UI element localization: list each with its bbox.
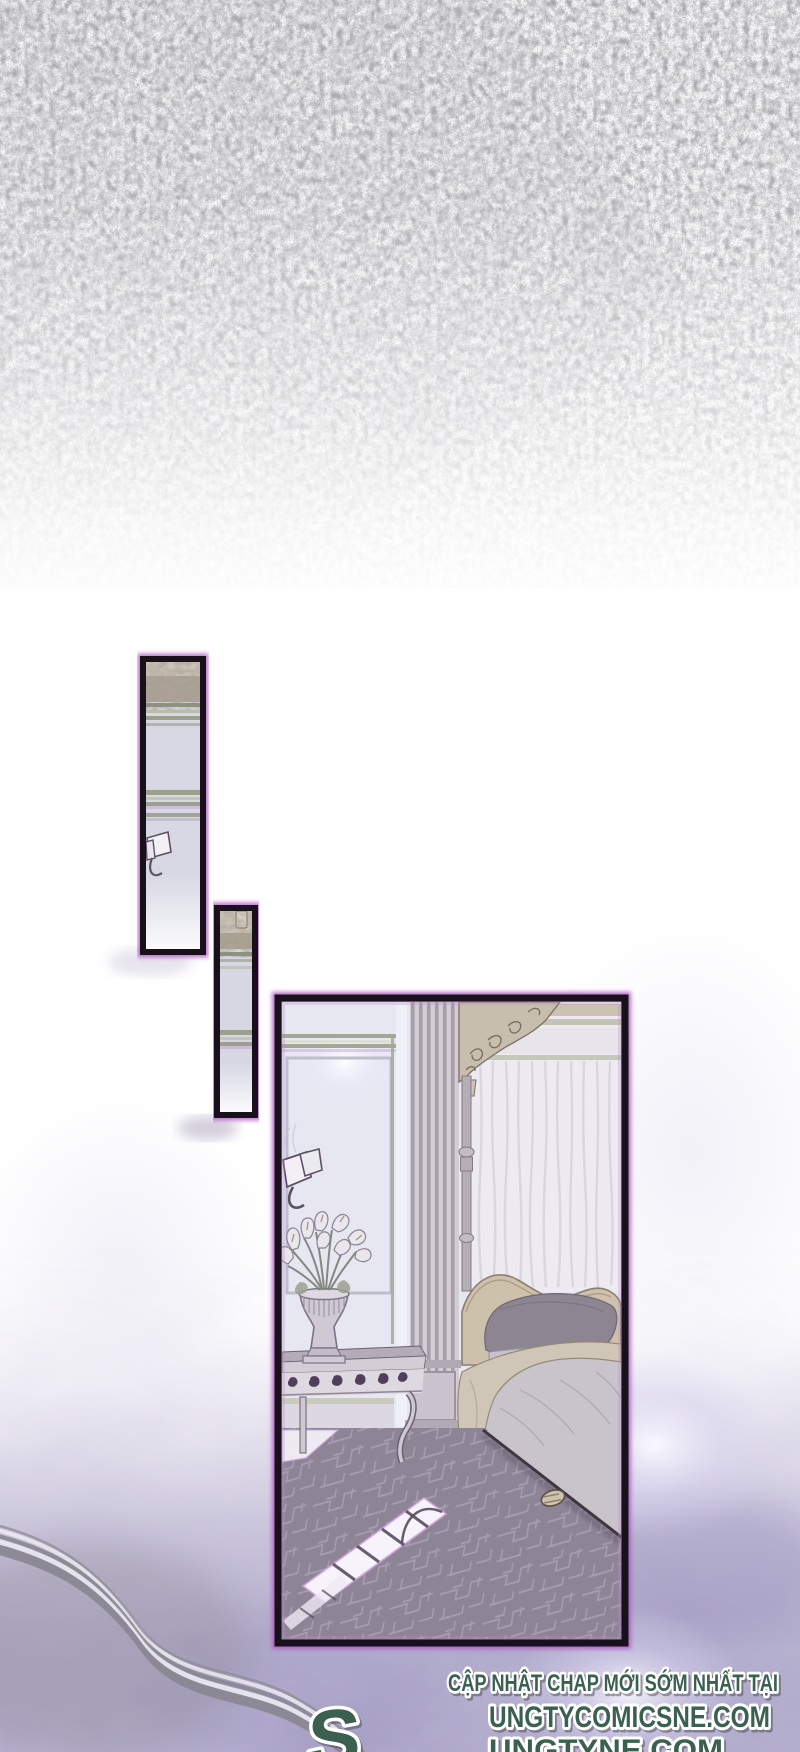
page-artwork: CẬP NHẬT CHAP MỚI SỚM NHẤT TẠI S UNGTYCO…: [0, 0, 800, 1752]
comic-panel-2: [217, 908, 255, 1115]
site-url-secondary: UNGTYNE.COM: [489, 1734, 723, 1752]
comic-panel-1: [143, 659, 203, 952]
charcoal-texture: [0, 0, 800, 630]
site-url-primary: UNGTYCOMICSNE.COM: [489, 1701, 770, 1734]
promo-text: CẬP NHẬT CHAP MỚI SỚM NHẤT TẠI: [448, 1669, 778, 1697]
comic-panel-3: [278, 998, 625, 1643]
comic-page: CẬP NHẬT CHAP MỚI SỚM NHẤT TẠI S UNGTYCO…: [0, 0, 800, 1752]
logo-monogram: S: [307, 1691, 362, 1752]
